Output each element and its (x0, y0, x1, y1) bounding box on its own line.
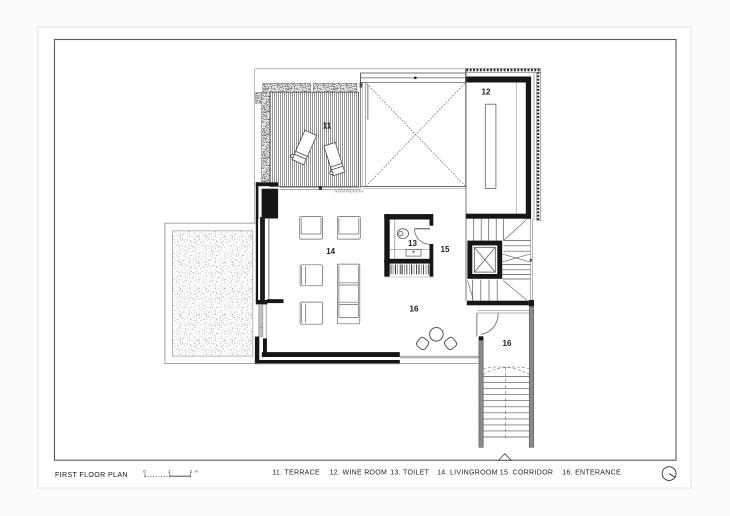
svg-text:14. LIVINGROOM: 14. LIVINGROOM (437, 469, 498, 476)
svg-text:11: 11 (323, 122, 332, 131)
svg-text:12. WINE ROOM: 12. WINE ROOM (330, 469, 388, 476)
svg-text:13. TOILET: 13. TOILET (390, 469, 429, 476)
svg-text:11. TERRACE: 11. TERRACE (272, 469, 320, 476)
svg-text:FIRST FLOOR PLAN: FIRST FLOOR PLAN (55, 471, 128, 479)
svg-text:14: 14 (326, 247, 335, 256)
svg-text:16: 16 (503, 339, 512, 348)
svg-text:15. CORRIDOR: 15. CORRIDOR (500, 469, 553, 476)
svg-text:m: m (195, 470, 198, 474)
svg-text:16. ENTERANCE: 16. ENTERANCE (562, 469, 621, 476)
svg-text:12: 12 (482, 88, 491, 97)
svg-text:13: 13 (408, 239, 417, 248)
svg-text:15: 15 (441, 245, 450, 254)
svg-text:16: 16 (410, 305, 419, 314)
